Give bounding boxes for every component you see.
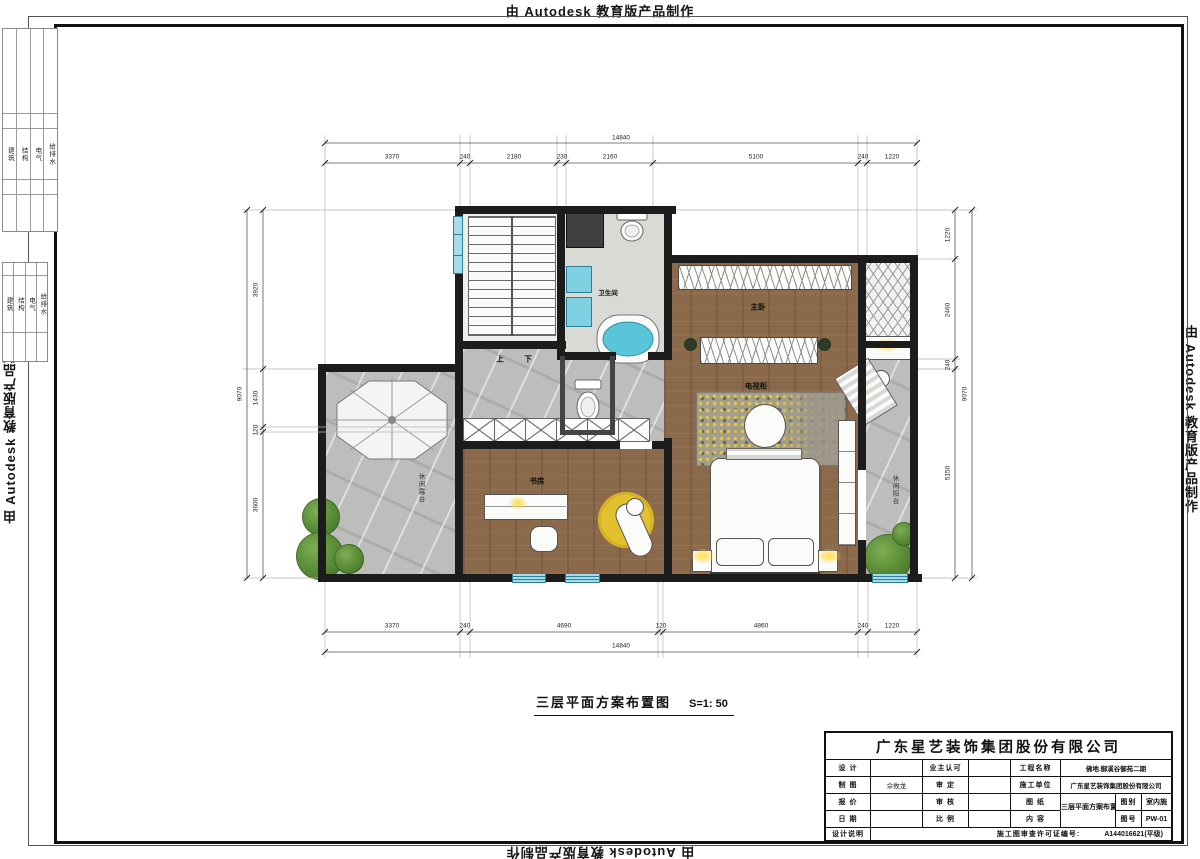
wall [318,364,326,582]
label-tv-cabinet: 电视柜 [745,381,768,392]
date-value [870,811,922,827]
dim-right-seg: 2460 [945,303,952,317]
drawing-title-text: 三层平面方案布置图 [536,692,671,711]
dim-left-seg: 120 [253,425,260,436]
desk-lamp-glow [508,496,528,510]
draft-value: 佘攸龙 [870,777,922,793]
tv-feature-wall [678,265,852,290]
quote-value [870,794,922,810]
dim-right-overall: 9070 [962,387,969,401]
label-master-bedroom: 主卧 [751,302,766,313]
discipline-label: 建筑 [3,297,13,312]
discipline-label: 电气 [26,297,36,312]
dim-top-seg: 3370 [385,154,399,161]
permit-value: A144016621(平级) [1104,829,1163,839]
round-ottoman [744,404,786,448]
sheet-content-merge [1060,810,1115,827]
watermark-bottom: 由 Autodesk 教育版产品制作 [506,844,694,859]
number-value: PW-01 [1141,811,1171,827]
dim-top-seg: 5100 [749,154,763,161]
stair-rail [511,216,513,336]
discipline-label: 建筑 [4,147,14,162]
dim-top-seg: 2180 [507,154,521,161]
chaise-head [626,498,644,516]
label-stair-down: 下 [524,354,532,365]
dim-bottom-seg: 240 [858,623,869,630]
quote-label: 报 价 [826,794,870,810]
dim-right-seg: 5150 [945,466,952,480]
scale-value [968,811,1010,827]
vanity-cabinet [566,266,592,293]
shrub [334,544,364,574]
wall [455,341,566,349]
title-block: 广东星艺装饰集团股份有限公司 设 计 业主认可 工程名称 佛地.御溪谷御苑二期 … [824,731,1173,842]
wc-partition [560,430,615,435]
project-name-label: 工程名称 [1010,760,1060,776]
pillow [716,538,764,566]
label-balcony: 休闲阳台 [889,475,899,505]
owner-approval-value [968,760,1010,776]
company-name: 广东星艺装饰集团股份有限公司 [826,733,1171,759]
dim-top-seg: 230 [557,154,568,161]
desk-chair [530,526,558,552]
wall [858,263,866,470]
permit-label: 施工图审查许可证编号: [997,829,1080,839]
design-notes-label: 设计说明 [826,828,870,840]
dim-bottom-seg: 3370 [385,623,399,630]
dim-right-seg: 1220 [945,228,952,242]
wall [455,206,676,214]
wall [664,206,672,356]
dim-bottom-seg: 120 [656,623,667,630]
discipline-label: 电气 [32,147,42,162]
window [512,573,546,583]
window [565,573,600,583]
dim-bottom-seg: 4690 [557,623,571,630]
scale-label: 比 例 [922,811,968,827]
register-table-mid: 建筑 结构 电气 给排水 [2,262,48,362]
discipline-label: 给排水 [37,293,47,316]
tall-wardrobe [838,420,856,546]
bedside-lamp-glow [816,548,842,564]
potted-plant [684,338,697,351]
design-value [870,760,922,776]
toilet [614,210,650,244]
potted-plant [818,338,831,351]
wall [664,255,918,263]
drawing-sheet: 由 Autodesk 教育版产品制作 由 Autodesk 教育版产品制作 由 … [0,0,1200,859]
discipline-label: 给排水 [46,143,56,166]
bed-bench [726,448,802,460]
dim-bottom-seg: 4860 [754,623,768,630]
category-label: 图别 [1115,794,1141,810]
dim-left-seg: 1430 [253,391,260,405]
wall [560,352,616,360]
dim-right-seg: 240 [945,360,952,371]
check-label: 审 核 [922,794,968,810]
check-value [968,794,1010,810]
label-bathroom: 卫生间 [598,287,618,297]
wall [910,255,918,582]
dim-left-overall: 9070 [237,387,244,401]
wardrobe-row [464,418,650,442]
discipline-label: 结构 [14,297,24,312]
design-label: 设 计 [826,760,870,776]
label-terrace: 休闲露台 [415,473,425,503]
watermark-left: 由 Autodesk 教育版产品制作 [1,335,20,523]
category-value: 室内施 [1141,794,1171,810]
drawing-title-scale: S=1: 50 [689,698,728,710]
dim-bottom-seg: 1220 [885,623,899,630]
approve-value [968,777,1010,793]
sheet-label: 图 纸 [1010,794,1060,810]
wc-partition [610,356,615,434]
dim-left-seg: 3600 [253,498,260,512]
wall [318,364,463,372]
dim-top-seg: 2160 [603,154,617,161]
tv-cabinet-unit [700,337,818,364]
approve-label: 审 定 [922,777,968,793]
wall [455,441,620,449]
dim-top-seg: 240 [858,154,869,161]
discipline-label: 结构 [18,147,28,162]
wc-partition [560,356,565,434]
number-label: 图号 [1115,811,1141,827]
contractor-value: 广东星艺装饰集团股份有限公司 [1060,777,1171,793]
wall [318,574,922,582]
sheet-content-value: 三层平面方案布置图 [1060,794,1115,810]
dim-bottom-seg: 240 [460,623,471,630]
wall [557,206,565,360]
dim-top-overall: 14840 [612,135,630,142]
label-study: 书房 [530,476,545,487]
window [453,216,463,274]
vanity-cabinet [566,297,592,327]
dim-top-seg: 240 [460,154,471,161]
wall [858,540,866,582]
dim-top-seg: 1220 [885,154,899,161]
date-label: 日 期 [826,811,870,827]
contractor-label: 施工单位 [1010,777,1060,793]
window [872,573,908,583]
project-name-value: 佛地.御溪谷御苑二期 [1060,760,1171,776]
pillow [768,538,814,566]
content-label: 内 容 [1010,811,1060,827]
label-stair-up: 上 [496,354,504,365]
bedside-lamp-glow [690,548,716,564]
drawing-title: 三层平面方案布置图 S=1: 50 [534,692,734,716]
register-table-top: 建筑 结构 电气 给排水 [2,28,58,232]
dim-bottom-overall: 14840 [612,643,630,650]
draft-label: 制 图 [826,777,870,793]
wall [664,438,672,582]
permit-cell: 施工图审查许可证编号: A144016621(平级) [870,828,1171,840]
owner-approval-label: 业主认可 [922,760,968,776]
dim-left-seg: 3920 [253,283,260,297]
shower-enclosure [566,212,604,248]
parasol-table [328,374,456,466]
